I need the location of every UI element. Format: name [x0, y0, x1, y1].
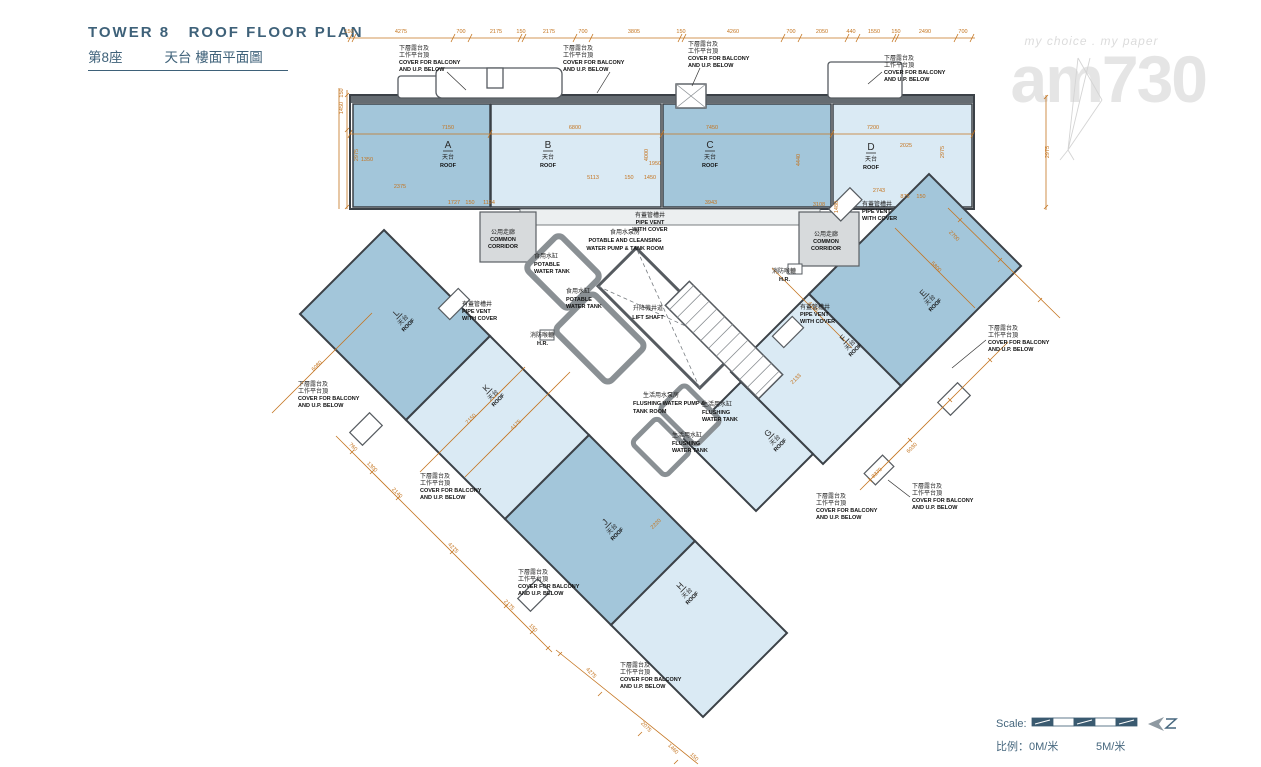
- ann-line: PIPE VENT: [862, 209, 891, 215]
- dim-label: 1550: [868, 29, 880, 35]
- ann-line: 下層露台及: [620, 661, 650, 669]
- ann-line: AND U.P. BELOW: [420, 495, 466, 501]
- dim-label: 2140: [390, 487, 403, 500]
- dim-label: 4440: [796, 154, 802, 166]
- dim-label: 2175: [502, 599, 515, 612]
- ann-line: 有蓋管槽井: [462, 300, 492, 308]
- dim-label: 2075: [639, 721, 652, 734]
- ann-line: AND U.P. BELOW: [399, 67, 445, 73]
- top-wing: [350, 62, 974, 209]
- dim-label: 700: [456, 29, 465, 35]
- ann-line: 工作平台頂: [620, 668, 650, 676]
- ann-line: TANK ROOM: [633, 409, 667, 415]
- ann-line: COVER FOR BALCONY: [816, 508, 878, 514]
- roof-letter: A: [445, 140, 452, 151]
- ann-line: LIFT SHAFT: [632, 315, 664, 321]
- balcony-cover-notch: [487, 68, 503, 88]
- vent-shaft-box: [676, 84, 706, 108]
- ann-line: H.R.: [537, 341, 548, 347]
- ann-line: 下層露台及: [518, 568, 548, 576]
- hose-reel-note: 消防喉轆 H.R.: [772, 267, 796, 283]
- ann-line: COVER FOR BALCONY: [399, 60, 461, 66]
- ann-line: 工作平台頂: [884, 61, 914, 69]
- dim-label: 150: [688, 752, 699, 763]
- ann-line: POTABLE AND CLEANSING: [588, 238, 661, 244]
- ann-line: AND U.P. BELOW: [912, 505, 958, 511]
- dim-label: 2743: [873, 188, 885, 194]
- dim-label: 2025: [900, 143, 912, 149]
- ann-line: COVER FOR BALCONY: [518, 584, 580, 590]
- ann-line: 工作平台頂: [563, 51, 593, 59]
- ann-line: AND U.P. BELOW: [620, 684, 666, 690]
- ann-line: WATER PUMP & TANK ROOM: [586, 246, 664, 252]
- dim-label: 150: [527, 623, 538, 634]
- dim-label: 1950: [649, 161, 661, 167]
- dim-label: 7150: [442, 125, 454, 131]
- dim-label: 150: [339, 88, 345, 97]
- ann-line: 生活用水缸: [702, 400, 732, 408]
- dim-label: 3943: [705, 200, 717, 206]
- cover-note: 下層露台及 工作平台頂 COVER FOR BALCONY AND U.P. B…: [816, 492, 878, 521]
- balcony-step-outline: [350, 413, 383, 446]
- ann-line: 有蓋管槽井: [800, 303, 830, 311]
- dim-label: 3108: [813, 202, 825, 208]
- ann-line: 工作平台頂: [912, 489, 942, 497]
- ann-line: 食用水泵房: [610, 228, 640, 236]
- roof-zh: 天台: [542, 153, 554, 161]
- dim-label: 700: [578, 29, 587, 35]
- dim-label: 150: [916, 194, 925, 200]
- ann-line: WITH COVER: [862, 216, 897, 222]
- roof-zh: 天台: [865, 155, 877, 163]
- roof-letter: D: [867, 142, 874, 153]
- dim-label: 4000: [644, 149, 650, 161]
- dim-label: 1460: [666, 743, 679, 756]
- ann-line: 下層露台及: [816, 492, 846, 500]
- ann-line: COVER FOR BALCONY: [884, 70, 946, 76]
- dim-label: 2975: [354, 149, 360, 161]
- ann-line: FLUSHING WATER PUMP &: [633, 401, 705, 407]
- cover-note: 下層露台及 工作平台頂 COVER FOR BALCONY AND U.P. B…: [912, 482, 974, 511]
- dim-label: 150: [465, 200, 474, 206]
- cover-note: 下層露台及 工作平台頂 COVER FOR BALCONY AND U.P. B…: [688, 40, 750, 69]
- dim-label: 150: [891, 29, 900, 35]
- dim-label: 5113: [587, 175, 599, 181]
- ann-line: WITH COVER: [800, 319, 835, 325]
- ann-line: 公用走廊: [814, 230, 838, 238]
- ann-line: AND U.P. BELOW: [884, 77, 930, 83]
- dim-label: 700: [786, 29, 795, 35]
- roof-b-area: [491, 104, 661, 207]
- dim-label: 2375: [394, 184, 406, 190]
- ann-line: 下層露台及: [298, 380, 328, 388]
- roof-zh: 天台: [442, 153, 454, 161]
- dim-label: 2490: [919, 29, 931, 35]
- ann-line: CORRIDOR: [811, 246, 841, 252]
- dim-label: 150: [344, 29, 353, 35]
- roof-letter: B: [545, 140, 552, 151]
- ann-line: COMMON: [813, 239, 839, 245]
- cover-note: 下層露台及 工作平台頂 COVER FOR BALCONY AND U.P. B…: [298, 380, 360, 409]
- ann-line: 有蓋管槽井: [862, 200, 892, 208]
- ann-line: COVER FOR BALCONY: [420, 488, 482, 494]
- ann-line: PIPE VENT: [800, 312, 829, 318]
- dim-label: 7450: [706, 125, 718, 131]
- dim-label: 1350: [361, 157, 373, 163]
- ann-line: 公用走廊: [491, 228, 515, 236]
- ann-line: 下層露台及: [420, 472, 450, 480]
- ann-line: WATER TANK: [672, 448, 708, 454]
- ann-line: 消防喉轆: [772, 267, 796, 275]
- ann-line: 工作平台頂: [518, 575, 548, 583]
- roof-en: ROOF: [440, 163, 457, 169]
- roof-en: ROOF: [540, 163, 557, 169]
- ann-line: 下層露台及: [884, 54, 914, 62]
- ann-line: WATER TANK: [702, 417, 738, 423]
- ann-line: AND U.P. BELOW: [298, 403, 344, 409]
- ann-line: 升降機井道: [633, 304, 663, 312]
- pipe-vent-note: 有蓋管槽井 PIPE VENT WITH COVER: [462, 300, 497, 322]
- dim-label: 6800: [569, 125, 581, 131]
- ann-line: WITH COVER: [462, 316, 497, 322]
- scale-bar: [1032, 718, 1137, 726]
- common-corridor-note: 公用走廊 COMMON CORRIDOR: [811, 230, 841, 252]
- roof-c-area: [663, 104, 831, 207]
- ann-line: COVER FOR BALCONY: [620, 677, 682, 683]
- roof-zh: 天台: [704, 153, 716, 161]
- roof-en: ROOF: [702, 163, 719, 169]
- dim-label: 2050: [816, 29, 828, 35]
- ann-line: 工作平台頂: [816, 499, 846, 507]
- page-canvas: TOWER 8 ROOF FLOOR PLAN 第8座天台 樓面平面圖 my c…: [0, 0, 1261, 767]
- ann-line: 有蓋管槽井: [635, 211, 665, 219]
- dim-label: 1450: [644, 175, 656, 181]
- scale-label: Scale:: [996, 718, 1027, 730]
- dim-label: 7200: [867, 125, 879, 131]
- dim-label: 6030: [906, 442, 919, 455]
- dim-label: 2175: [543, 29, 555, 35]
- dim-label: 150: [516, 29, 525, 35]
- ann-line: AND U.P. BELOW: [688, 63, 734, 69]
- ann-line: 消防喉轆: [530, 331, 554, 339]
- ann-line: 下層露台及: [563, 44, 593, 52]
- ann-line: COVER FOR BALCONY: [912, 498, 974, 504]
- dim-label: 4275: [395, 29, 407, 35]
- ann-line: 工作平台頂: [688, 47, 718, 55]
- dim-label: 150: [624, 175, 633, 181]
- dim-label: 1450: [339, 102, 345, 114]
- dim-label: 1480: [834, 201, 840, 213]
- balcony-step-outline: [938, 383, 971, 416]
- dim-label: 2175: [490, 29, 502, 35]
- ann-line: 下層露台及: [399, 44, 429, 52]
- ann-line: WATER TANK: [534, 269, 570, 275]
- ann-line: 食用水缸: [534, 252, 558, 260]
- floor-plan-drawing: 150 4275 700 2175 150 2175 700 3805 150 …: [0, 0, 1261, 767]
- dim-label: 760: [347, 442, 358, 453]
- roof-letter: C: [706, 140, 713, 151]
- ann-line: 工作平台頂: [399, 51, 429, 59]
- scale-5m-label: 5M/米: [1096, 740, 1125, 753]
- ann-line: PIPE VENT: [636, 220, 665, 226]
- roof-a-area: [353, 104, 490, 207]
- dim-label: 440: [846, 29, 855, 35]
- ann-line: AND U.P. BELOW: [816, 515, 862, 521]
- ann-line: 生活用水缸: [672, 431, 702, 439]
- dim-label: 150: [676, 29, 685, 35]
- ann-line: 食用水缸: [566, 287, 590, 295]
- dim-label: 2975: [940, 146, 946, 158]
- ann-line: 下層露台及: [688, 40, 718, 48]
- ann-line: AND U.P. BELOW: [563, 67, 609, 73]
- ann-line: 下層露台及: [988, 324, 1018, 332]
- ann-line: AND U.P. BELOW: [988, 347, 1034, 353]
- dim-label: 875: [900, 194, 909, 200]
- ann-line: COVER FOR BALCONY: [988, 340, 1050, 346]
- ann-line: POTABLE: [534, 262, 560, 268]
- ann-line: COVER FOR BALCONY: [688, 56, 750, 62]
- dim-label: 2975: [1045, 146, 1051, 158]
- scale-block: Scale: 比例：0M/米 5M/米: [996, 717, 1176, 753]
- ann-line: 工作平台頂: [420, 479, 450, 487]
- ann-line: 下層露台及: [912, 482, 942, 490]
- dim-label: 4260: [727, 29, 739, 35]
- ann-line: FLUSHING: [702, 410, 730, 416]
- ann-line: COVER FOR BALCONY: [298, 396, 360, 402]
- scale-zh-label: 比例：0M/米: [996, 739, 1058, 753]
- ann-line: FLUSHING: [672, 441, 700, 447]
- dim-label: 3805: [628, 29, 640, 35]
- ann-line: WATER TANK: [566, 304, 602, 310]
- ann-line: PIPE VENT: [462, 309, 491, 315]
- ann-line: H.R.: [779, 277, 790, 283]
- ann-line: POTABLE: [566, 297, 592, 303]
- north-arrow-icon: [1148, 717, 1176, 731]
- ann-line: COMMON: [490, 237, 516, 243]
- corridor-strip: [520, 209, 820, 225]
- cover-note: 下層露台及 工作平台頂 COVER FOR BALCONY AND U.P. B…: [884, 54, 946, 83]
- ann-line: AND U.P. BELOW: [518, 591, 564, 597]
- ann-line: 生活用水泵房: [643, 391, 679, 399]
- ann-line: 工作平台頂: [988, 331, 1018, 339]
- roof-en: ROOF: [863, 165, 880, 171]
- common-corridor-note: 公用走廊 COMMON CORRIDOR: [488, 228, 518, 250]
- crane-sketch: [1060, 58, 1102, 160]
- dim-label: 1124: [483, 200, 495, 206]
- ann-line: 工作平台頂: [298, 387, 328, 395]
- dim-label: 6080: [311, 360, 324, 373]
- ann-line: CORRIDOR: [488, 244, 518, 250]
- dim-label: 700: [958, 29, 967, 35]
- cover-note: 下層露台及 工作平台頂 COVER FOR BALCONY AND U.P. B…: [563, 44, 625, 73]
- dim-label: 1727: [448, 200, 460, 206]
- cover-note: 下層露台及 工作平台頂 COVER FOR BALCONY AND U.P. B…: [988, 324, 1050, 353]
- ann-line: COVER FOR BALCONY: [563, 60, 625, 66]
